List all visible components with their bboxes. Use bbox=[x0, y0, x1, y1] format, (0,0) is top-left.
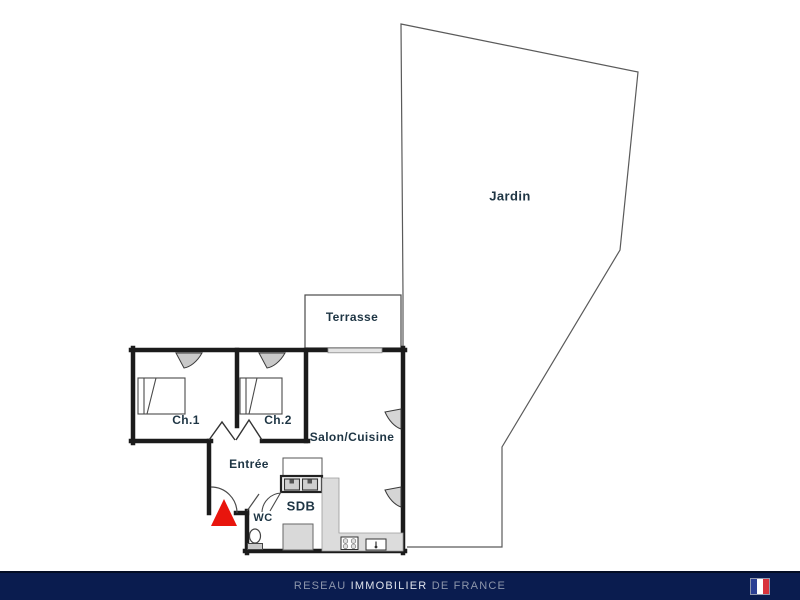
floor-plan-page: Jardin Terrasse Ch.1 Ch.2 Salon/Cuisine … bbox=[0, 0, 800, 600]
room-label-sdb: SDB bbox=[287, 499, 316, 514]
room-label-terrasse: Terrasse bbox=[326, 310, 378, 324]
stove-icon bbox=[341, 537, 358, 550]
bed-icon-ch2 bbox=[240, 378, 282, 414]
bathroom-cabinet bbox=[283, 458, 322, 477]
room-label-entree: Entrée bbox=[229, 457, 269, 471]
brand-prefix: RESEAU bbox=[294, 580, 346, 592]
brand-suffix: DE FRANCE bbox=[432, 580, 506, 592]
kitchen-sink-icon bbox=[366, 539, 386, 550]
room-label-salon-cuisine: Salon/Cuisine bbox=[310, 430, 395, 444]
room-label-wc: WC bbox=[253, 512, 272, 524]
garden-outline bbox=[401, 24, 638, 547]
room-label-jardin: Jardin bbox=[489, 189, 530, 204]
brand-text: RESEAU IMMOBILIER DE FRANCE bbox=[0, 580, 800, 592]
french-flag-icon bbox=[751, 579, 769, 594]
bed-icon-ch1 bbox=[138, 378, 185, 414]
brand-main: IMMOBILIER bbox=[351, 580, 428, 592]
footer-bar: RESEAU IMMOBILIER DE FRANCE bbox=[0, 571, 800, 600]
room-label-ch2: Ch.2 bbox=[264, 413, 292, 427]
room-label-ch1: Ch.1 bbox=[172, 413, 200, 427]
double-sink-icon bbox=[281, 476, 322, 492]
floor-plan-drawing bbox=[0, 0, 800, 600]
window-icon bbox=[328, 348, 382, 353]
shower-tray bbox=[283, 524, 313, 550]
